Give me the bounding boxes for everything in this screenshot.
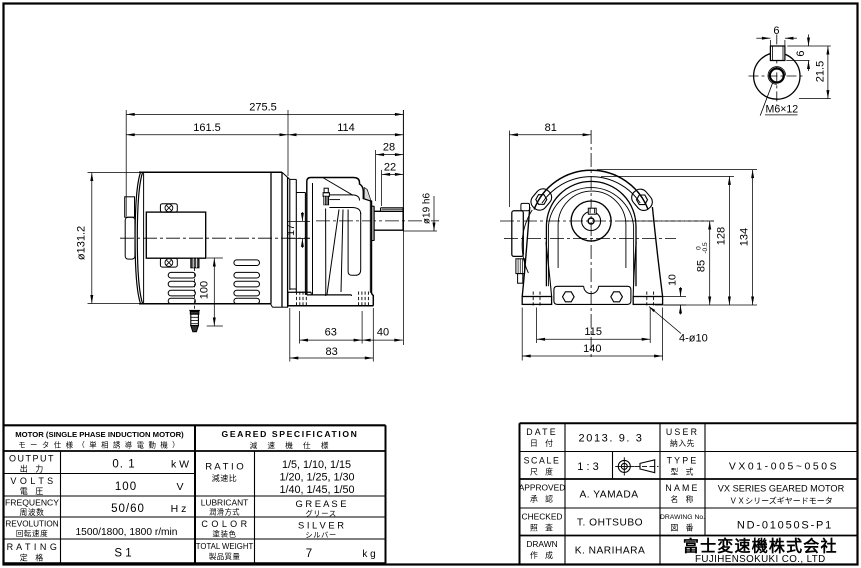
svg-text:ＶＸシリーズギヤードモータ: ＶＸシリーズギヤードモータ: [729, 496, 833, 506]
svg-text:H z: H z: [171, 503, 187, 515]
svg-text:1 : 3: 1 : 3: [577, 461, 598, 473]
svg-text:100: 100: [199, 281, 211, 299]
svg-text:G R E A S E: G R E A S E: [295, 498, 346, 509]
svg-text:TYPE: TYPE: [667, 456, 699, 466]
svg-text:1/20, 1/25, 1/30: 1/20, 1/25, 1/30: [279, 472, 354, 484]
svg-text:S I L V E R: S I L V E R: [298, 520, 344, 531]
svg-text:APPROVED: APPROVED: [519, 483, 566, 493]
svg-text:1500/1800, 1800 r/min: 1500/1800, 1800 r/min: [76, 527, 178, 538]
svg-text:承 認: 承 認: [530, 494, 554, 504]
svg-text:V: V: [176, 481, 183, 493]
svg-text:FREQUENCY: FREQUENCY: [5, 498, 59, 508]
svg-text:定 格: 定 格: [20, 553, 44, 563]
svg-text:161.5: 161.5: [193, 122, 221, 134]
svg-text:シルバー: シルバー: [305, 531, 337, 540]
svg-text:MOTOR (SINGLE PHASE INDUCTION: MOTOR (SINGLE PHASE INDUCTION MOTOR): [15, 430, 184, 439]
svg-text:TOTAL WEIGHT: TOTAL WEIGHT: [196, 542, 254, 551]
svg-text:128: 128: [715, 227, 727, 245]
svg-text:LUBRICANT: LUBRICANT: [201, 498, 248, 508]
svg-text:4-ø10: 4-ø10: [679, 333, 708, 345]
svg-text:R A T I O: R A T I O: [205, 462, 244, 473]
svg-text:114: 114: [337, 122, 355, 134]
svg-text:DATE: DATE: [526, 427, 558, 437]
svg-text:周波数: 周波数: [20, 507, 45, 517]
svg-text:モ ー タ 仕 様 （ 単 相 誘 導 電 動 機 ）: モ ー タ 仕 様 （ 単 相 誘 導 電 動 機 ）: [18, 441, 181, 450]
svg-text:S 1: S 1: [114, 548, 131, 560]
svg-text:-0.5: -0.5: [702, 242, 709, 254]
svg-text:SCALE: SCALE: [524, 456, 561, 466]
svg-text:NAME: NAME: [665, 483, 699, 493]
svg-text:日 付: 日 付: [530, 438, 554, 448]
svg-text:10: 10: [667, 274, 679, 286]
svg-text:2013. 9. 3: 2013. 9. 3: [579, 433, 644, 445]
svg-text:ND-01050S-P1: ND-01050S-P1: [737, 520, 833, 532]
svg-text:VX01-005~050S: VX01-005~050S: [729, 462, 839, 473]
svg-text:OUTPUT: OUTPUT: [9, 454, 55, 464]
svg-text:6: 6: [773, 25, 779, 37]
svg-text:63: 63: [325, 327, 337, 339]
svg-text:C O L O R: C O L O R: [201, 519, 247, 529]
svg-text:100: 100: [115, 481, 137, 493]
svg-text:K. NARIHARA: K. NARIHARA: [575, 546, 646, 557]
svg-text:名 称: 名 称: [671, 494, 695, 504]
svg-text:134: 134: [738, 228, 750, 246]
svg-text:40: 40: [377, 327, 389, 339]
svg-text:納入先: 納入先: [670, 438, 695, 448]
svg-text:減 速 機 仕 様: 減 速 機 仕 様: [250, 440, 331, 450]
svg-text:7: 7: [306, 548, 312, 560]
svg-text:出 力: 出 力: [20, 464, 44, 474]
svg-text:28: 28: [383, 142, 395, 154]
svg-text:k g: k g: [362, 549, 375, 560]
svg-text:FUJIHENSOKUKI CO., LTD: FUJIHENSOKUKI CO., LTD: [695, 554, 826, 565]
svg-text:A. YAMADA: A. YAMADA: [579, 490, 638, 501]
svg-text:6: 6: [795, 50, 807, 56]
svg-text:50/60: 50/60: [111, 503, 145, 515]
svg-text:0. 1: 0. 1: [112, 459, 135, 471]
svg-text:CHECKED: CHECKED: [522, 512, 563, 522]
svg-text:83: 83: [325, 346, 337, 358]
svg-text:ø131.2: ø131.2: [76, 226, 88, 260]
svg-text:22: 22: [384, 162, 396, 174]
svg-text:尺 度: 尺 度: [530, 467, 554, 477]
svg-text:k W: k W: [171, 459, 189, 471]
svg-text:VX SERIES GEARED MOTOR: VX SERIES GEARED MOTOR: [718, 484, 845, 494]
svg-text:115: 115: [584, 326, 602, 338]
svg-text:照 査: 照 査: [530, 523, 554, 533]
svg-text:図 番: 図 番: [671, 523, 695, 533]
svg-text:電 圧: 電 圧: [20, 487, 44, 496]
svg-text:塗装色: 塗装色: [212, 529, 236, 539]
svg-text:グリース: グリース: [305, 509, 336, 518]
svg-text:型 式: 型 式: [671, 467, 695, 477]
svg-text:V O L T S: V O L T S: [10, 476, 53, 486]
svg-text:81: 81: [545, 122, 557, 134]
svg-text:17: 17: [285, 224, 297, 236]
svg-text:減速比: 減速比: [212, 473, 238, 483]
svg-text:USER: USER: [666, 427, 699, 437]
svg-text:製品質量: 製品質量: [209, 551, 241, 561]
svg-text:作 成: 作 成: [530, 550, 554, 560]
svg-text:275.5: 275.5: [249, 102, 277, 114]
svg-text:ø19 h6: ø19 h6: [422, 192, 433, 224]
svg-text:R A T I N G: R A T I N G: [7, 542, 58, 552]
svg-text:M6×12: M6×12: [766, 104, 799, 116]
svg-text:T. OHTSUBO: T. OHTSUBO: [577, 518, 643, 529]
svg-text:回転速度: 回転速度: [16, 528, 48, 538]
svg-text:潤滑方式: 潤滑方式: [209, 508, 240, 517]
svg-text:DRAWING No.: DRAWING No.: [660, 514, 705, 521]
svg-text:21.5: 21.5: [814, 61, 826, 82]
svg-text:REVOLUTION: REVOLUTION: [5, 520, 58, 529]
svg-text:1/40, 1/45, 1/50: 1/40, 1/45, 1/50: [279, 484, 354, 496]
svg-text:GEARED SPECIFICATION: GEARED SPECIFICATION: [222, 429, 359, 439]
svg-text:1/5, 1/10, 1/15: 1/5, 1/10, 1/15: [282, 459, 351, 471]
svg-text:DRAWN: DRAWN: [526, 539, 557, 549]
svg-text:富士変速機株式会社: 富士変速機株式会社: [683, 537, 838, 556]
svg-text:140: 140: [583, 343, 601, 355]
svg-text:85: 85: [696, 260, 708, 272]
